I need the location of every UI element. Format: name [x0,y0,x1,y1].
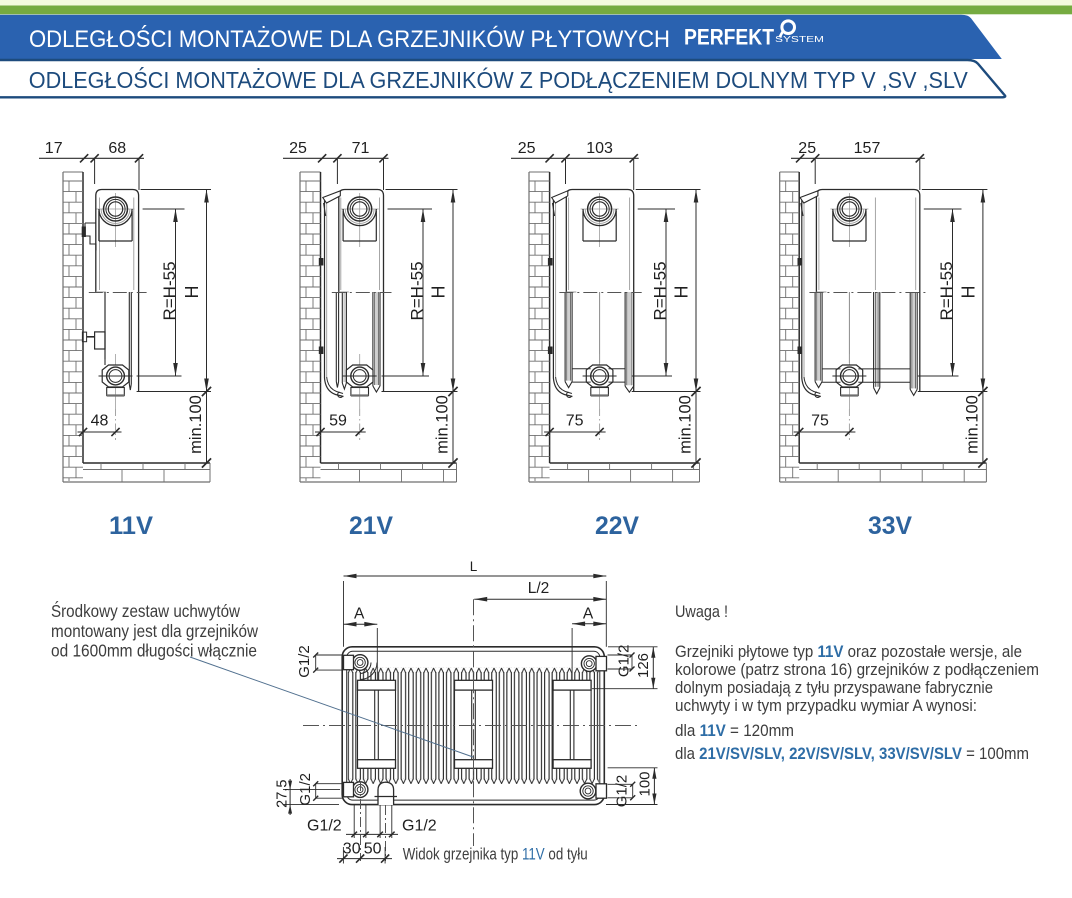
svg-text:ODLEGŁOŚCI MONTAŻOWE DLA GRZEJ: ODLEGŁOŚCI MONTAŻOWE DLA GRZEJNIKÓW Z PO… [29,66,969,93]
svg-text:dla 21V/SV/SLV, 22V/SV/SLV, 33: dla 21V/SV/SLV, 22V/SV/SLV, 33V/SV/SLV =… [675,745,1029,763]
svg-text:50: 50 [364,841,382,858]
svg-text:min.100: min.100 [963,395,981,454]
svg-text:kolorowe (patrz strona 16) grz: kolorowe (patrz strona 16) grzejników z … [675,661,1039,679]
svg-text:uchwyty i w tym przypadku wymi: uchwyty i w tym przypadku wymiar A wynos… [675,697,977,715]
svg-text:103: 103 [586,140,613,157]
svg-text:21V: 21V [349,512,393,540]
svg-text:A: A [583,606,594,623]
svg-text:R=H-55: R=H-55 [937,261,956,320]
svg-text:126: 126 [635,653,652,678]
svg-text:27,5: 27,5 [274,780,290,808]
svg-text:A: A [354,606,365,623]
svg-text:75: 75 [566,413,584,430]
svg-text:min.100: min.100 [677,395,695,454]
svg-text:R=H-55: R=H-55 [651,261,670,320]
svg-text:G1/2: G1/2 [296,645,313,678]
svg-text:R=H-55: R=H-55 [160,261,179,320]
svg-text:75: 75 [811,413,829,430]
svg-text:H: H [429,286,449,299]
svg-text:ODLEGŁOŚCI MONTAŻOWE DLA GRZ: ODLEGŁOŚCI MONTAŻOWE DLA GRZEJNIKÓW PŁYT… [29,25,670,53]
svg-text:G1/2: G1/2 [402,818,437,835]
svg-text:dla 11V = 120mm: dla 11V = 120mm [675,722,794,740]
svg-text:Grzejniki płytowe typ 11V oraz: Grzejniki płytowe typ 11V oraz pozostałe… [675,643,1022,661]
svg-text:33V: 33V [868,512,912,540]
svg-text:PERFEKT: PERFEKT [684,25,774,50]
svg-text:11V: 11V [109,512,153,540]
svg-text:L/2: L/2 [528,580,550,597]
svg-text:71: 71 [352,140,370,157]
svg-text:dolnym posiadają z tyłu przysp: dolnym posiadają z tyłu przyspawane fabr… [675,679,993,697]
svg-text:H: H [182,286,202,299]
svg-text:G1/2: G1/2 [614,775,631,808]
svg-text:H: H [672,286,692,299]
svg-text:min.100: min.100 [434,395,452,454]
svg-text:G1/2: G1/2 [307,818,342,835]
svg-text:68: 68 [108,140,126,157]
svg-text:100: 100 [636,771,653,796]
svg-text:od 1600mm długości włącznie: od 1600mm długości włącznie [51,641,257,661]
svg-text:min.100: min.100 [187,395,205,454]
svg-text:25: 25 [289,140,307,157]
svg-text:25: 25 [518,140,536,157]
svg-text:Uwaga !: Uwaga ! [675,602,728,621]
svg-text:R=H-55: R=H-55 [408,261,427,320]
svg-text:Środkowy zestaw uchwytów: Środkowy zestaw uchwytów [51,600,240,621]
svg-text:25: 25 [798,140,816,157]
svg-text:17: 17 [45,140,63,157]
svg-text:22V: 22V [595,512,639,540]
svg-text:G1/2: G1/2 [615,645,632,678]
svg-text:157: 157 [854,140,881,157]
svg-text:59: 59 [329,413,347,430]
svg-text:SYSTEM: SYSTEM [775,35,824,44]
svg-text:30: 30 [343,841,361,858]
svg-text:L: L [470,559,478,574]
svg-text:H: H [958,286,978,299]
svg-text:montowany jest dla grzejników: montowany jest dla grzejników [51,621,258,641]
svg-text:48: 48 [91,413,109,430]
svg-text:Widok grzejnika typ 11V od tył: Widok grzejnika typ 11V od tyłu [403,846,588,864]
